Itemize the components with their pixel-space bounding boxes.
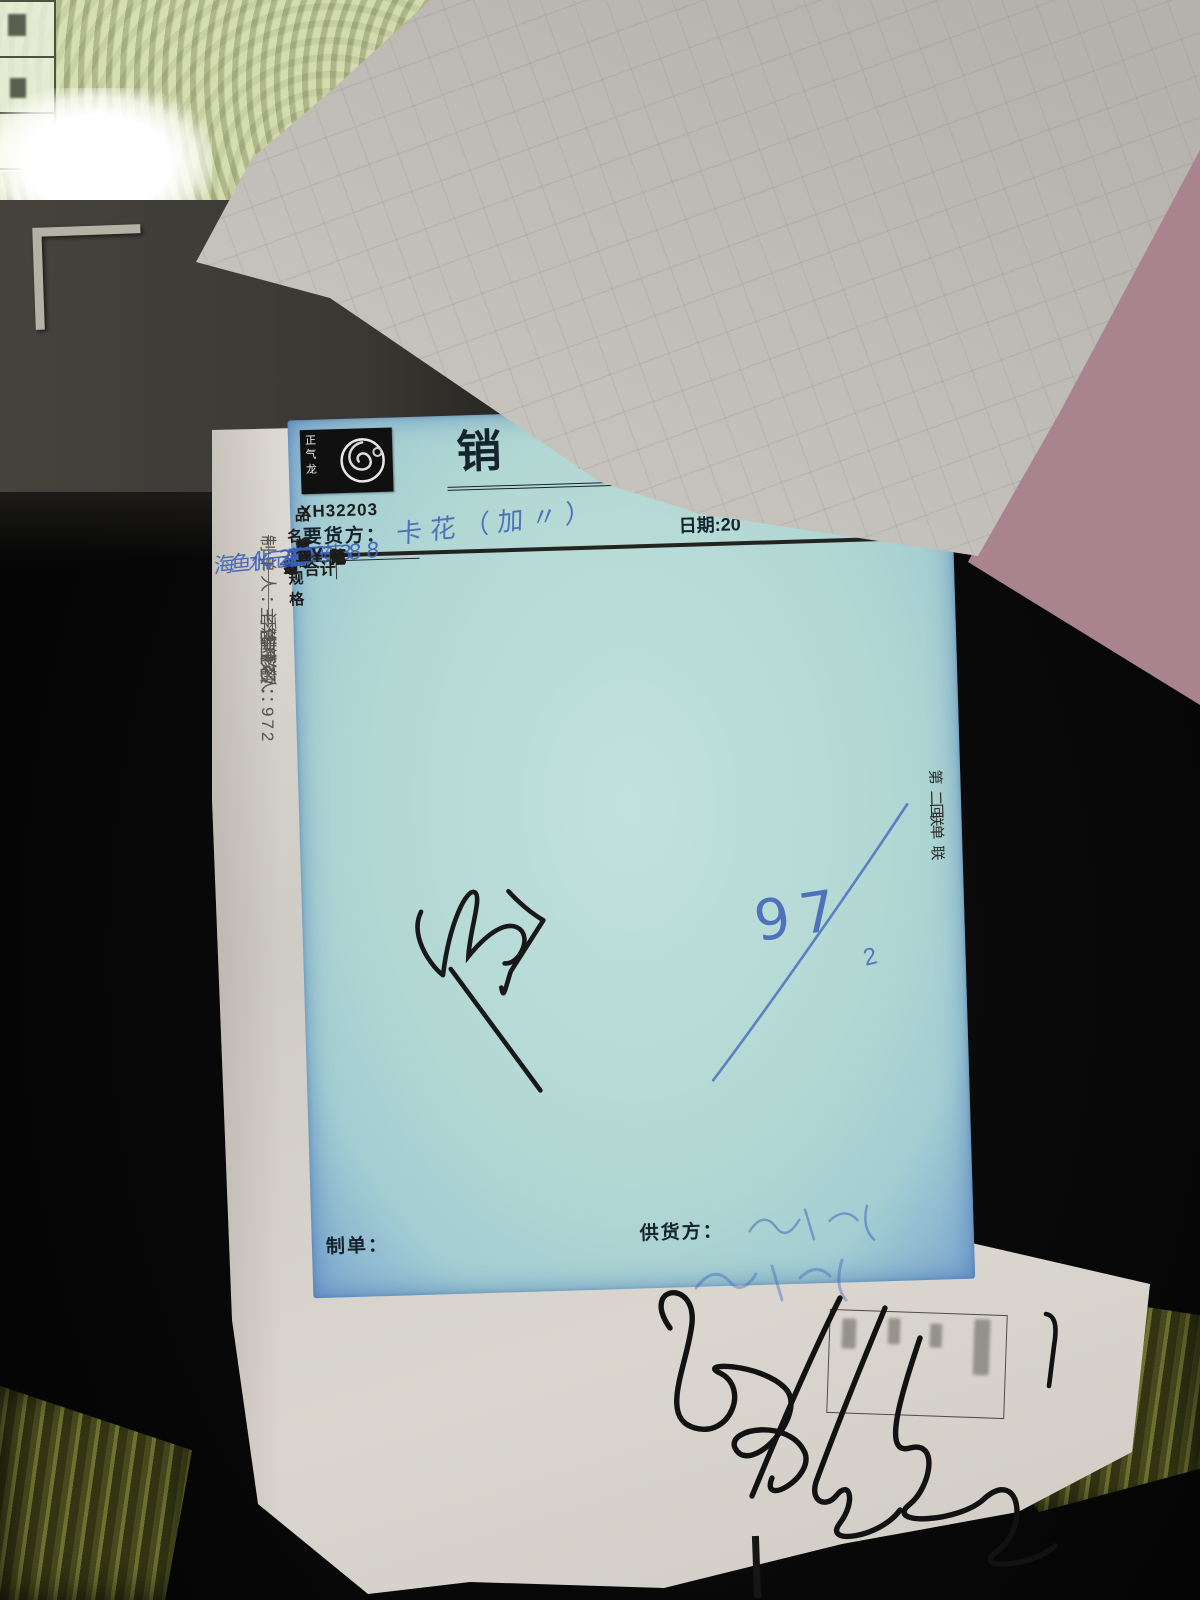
dragon-emblem-icon bbox=[328, 430, 392, 492]
maker-label: 制单： bbox=[325, 1230, 389, 1259]
corner-bracket-mark bbox=[32, 224, 143, 330]
currency-blank-line bbox=[315, 547, 419, 562]
margin-total: 总金额：972 bbox=[257, 627, 282, 744]
blue-smudge-marks bbox=[688, 1248, 868, 1318]
photo-of-sales-invoice: 制单人：季佳欣 审核人： 主管签名： 总金额：972 正气龙 XH32203 销… bbox=[0, 0, 1200, 1600]
brand-logo-box: 正气龙 bbox=[300, 428, 394, 495]
supplier-label: 供货方： bbox=[639, 1216, 724, 1245]
buyer-handwritten-value: 卡花（加〃） bbox=[396, 490, 599, 551]
fabric-left bbox=[0, 1386, 192, 1600]
items-table: 序 号品名及规格单 位数量单价金额1佧花茹口15152252海水晶 38口103… bbox=[301, 537, 891, 559]
middle-signature-scrawl bbox=[396, 867, 593, 1123]
brand-name: 正气龙 bbox=[305, 434, 320, 477]
supplier-handwriting-scrawl bbox=[743, 1198, 914, 1253]
handwritten-total: 97 bbox=[750, 877, 850, 955]
